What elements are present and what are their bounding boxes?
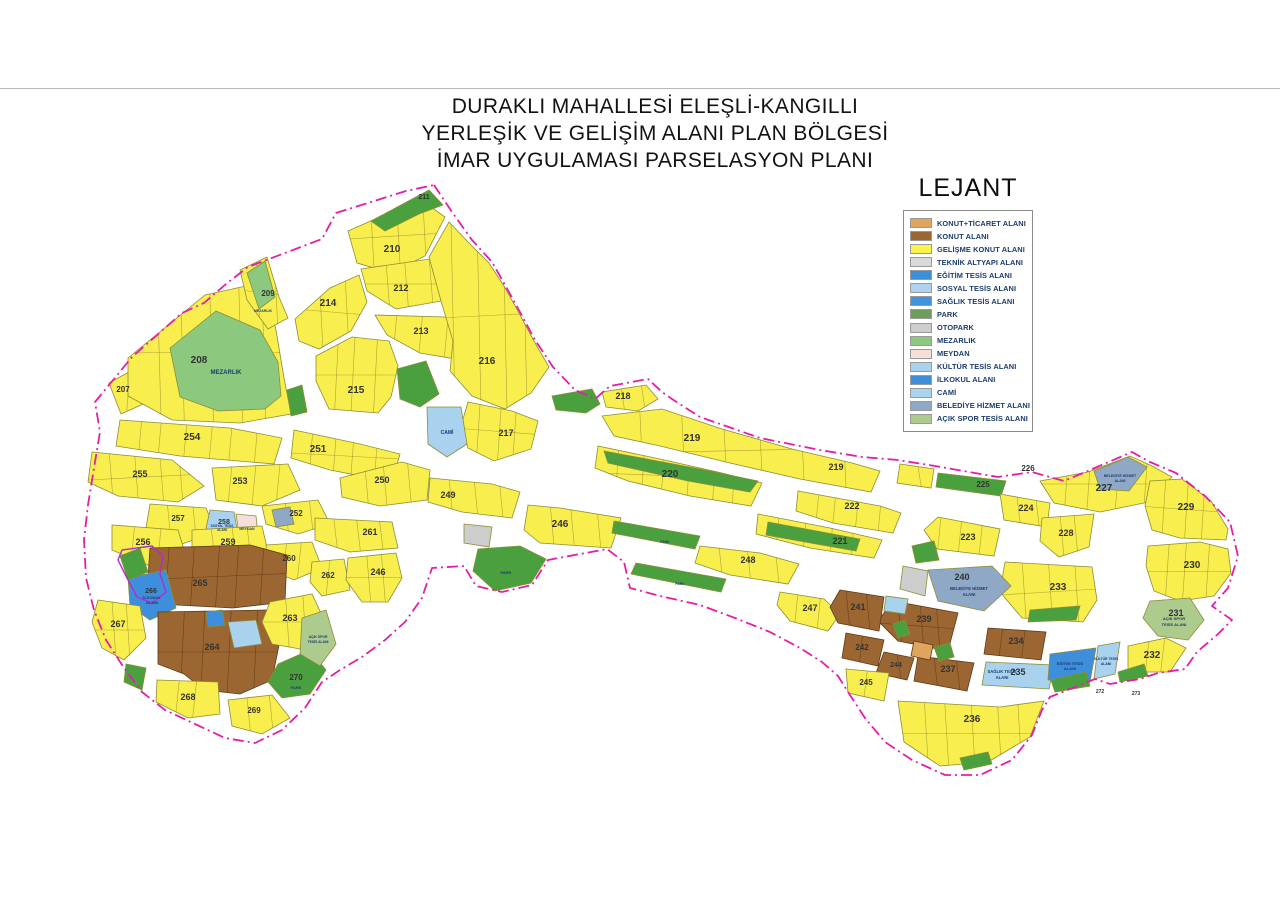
parcel-block	[900, 566, 928, 596]
legend-item: OTOPARK	[910, 323, 1026, 333]
legend-item: SOSYAL TESİS ALANI	[910, 283, 1026, 293]
legend-item: AÇIK SPOR TESİS ALANI	[910, 414, 1026, 424]
legend-swatch	[910, 231, 932, 241]
facility-label: CAMİ	[441, 429, 454, 436]
block-number-label: 211	[418, 194, 429, 201]
block-number-label: 259	[220, 537, 235, 547]
facility-label: ALANI	[996, 675, 1009, 680]
parcel-block	[897, 464, 934, 488]
legend-title: LEJANT	[903, 174, 1033, 203]
block-number-label: 264	[204, 642, 219, 652]
block-number-label: 210	[384, 244, 401, 255]
legend-swatch	[910, 388, 932, 398]
block-number-label: 253	[232, 476, 247, 486]
block-number-label: 212	[393, 283, 408, 293]
legend: LEJANT KONUT+TİCARET ALANIKONUT ALANIGEL…	[903, 174, 1033, 432]
block-number-label: 256	[135, 537, 150, 547]
facility-label: PARK	[290, 685, 301, 690]
legend-swatch	[910, 270, 932, 280]
block-number-label: 216	[479, 356, 496, 367]
legend-item-label: SAĞLIK TESİS ALANI	[937, 297, 1015, 306]
block-number-label: 217	[498, 428, 513, 438]
legend-item: CAMİ	[910, 388, 1026, 398]
legend-swatch	[910, 336, 932, 346]
block-number-label: 265	[192, 578, 207, 588]
legend-item: KONUT ALANI	[910, 231, 1026, 241]
block-number-label: 262	[321, 571, 335, 580]
legend-swatch	[910, 362, 932, 372]
legend-item-label: CAMİ	[937, 388, 956, 397]
legend-swatch	[910, 323, 932, 333]
block-number-label: 260	[282, 554, 296, 563]
block-number-label: 252	[289, 509, 303, 518]
block-number-label: 272	[1096, 689, 1105, 695]
facility-label: MEYDAN	[239, 527, 255, 531]
legend-swatch	[910, 296, 932, 306]
block-number-label: 241	[850, 602, 865, 612]
block-number-label: 269	[247, 706, 261, 715]
facility-label: ALANI	[1101, 662, 1111, 666]
block-number-label: 228	[1058, 528, 1073, 538]
block-number-label: 219	[684, 433, 701, 444]
legend-swatch	[910, 283, 932, 293]
facility-label: MEZARLIK	[211, 370, 243, 376]
block-number-label: 214	[320, 298, 337, 309]
legend-item-label: İLKOKUL ALANI	[937, 375, 995, 384]
parcel-block	[315, 518, 398, 552]
facility-label: AÇIK SPOR	[309, 635, 328, 639]
block-number-label: 226	[1021, 464, 1035, 473]
block-number-label: 248	[740, 555, 755, 565]
legend-item: GELİŞME KONUT ALANI	[910, 244, 1026, 254]
legend-item: İLKOKUL ALANI	[910, 375, 1026, 385]
block-number-label: 240	[954, 572, 969, 582]
legend-item: MEZARLIK	[910, 336, 1026, 346]
legend-item-label: SOSYAL TESİS ALANI	[937, 284, 1016, 293]
block-number-label: 208	[191, 355, 208, 366]
block-number-label: 223	[960, 532, 975, 542]
block-number-label: 209	[261, 289, 275, 298]
legend-swatch	[910, 414, 932, 424]
legend-item-label: PARK	[937, 310, 958, 319]
facility-label: BELEDİYE HİZMET	[950, 586, 988, 591]
block-number-label: 232	[1144, 650, 1161, 661]
legend-swatch	[910, 375, 932, 385]
block-number-label: 225	[976, 480, 990, 489]
block-number-label: 255	[132, 469, 147, 479]
block-number-label: 221	[832, 536, 847, 546]
block-number-label: 273	[1132, 691, 1141, 697]
parcel-block	[228, 620, 262, 648]
legend-item: KÜLTÜR TESİS ALANI	[910, 362, 1026, 372]
block-number-label: 266	[145, 588, 157, 595]
facility-label: PARK	[660, 540, 670, 544]
block-number-label: 230	[1184, 560, 1201, 571]
parcel-block	[473, 546, 546, 591]
legend-item: KONUT+TİCARET ALANI	[910, 218, 1026, 228]
legend-item-label: BELEDİYE HİZMET ALANI	[937, 401, 1030, 410]
facility-label: TESİS ALANI	[1162, 622, 1187, 627]
facility-label: KÜLTÜR TESİS	[1094, 656, 1119, 661]
legend-item: SAĞLIK TESİS ALANI	[910, 296, 1026, 306]
parcel-block	[124, 664, 146, 690]
facility-label: ALANI	[1064, 666, 1076, 671]
facility-label: SAĞLIK TESİS	[987, 669, 1016, 674]
legend-box: KONUT+TİCARET ALANIKONUT ALANIGELİŞME KO…	[903, 210, 1033, 432]
legend-item-label: AÇIK SPOR TESİS ALANI	[937, 414, 1028, 423]
block-number-label: 229	[1178, 502, 1195, 513]
facility-label: ALANI	[217, 528, 227, 532]
block-number-label: 246	[552, 519, 569, 530]
parcel-block	[287, 385, 307, 416]
block-number-label: 237	[940, 664, 955, 674]
legend-swatch	[910, 244, 932, 254]
facility-label: ALANI	[963, 592, 976, 597]
parcel-block	[397, 361, 439, 407]
block-number-label: 234	[1008, 636, 1023, 646]
block-number-label: 220	[662, 469, 679, 480]
block-number-label: 239	[916, 614, 931, 624]
block-number-label: 257	[171, 514, 185, 523]
facility-label: PARK	[500, 570, 511, 575]
legend-swatch	[910, 309, 932, 319]
plan-sheet: DURAKLI MAHALLESİ ELEŞLİ-KANGILLI YERLEŞ…	[0, 0, 1280, 905]
block-number-label: 254	[184, 432, 201, 443]
parcel-block	[884, 596, 908, 614]
legend-item: EĞİTİM TESİS ALANI	[910, 270, 1026, 280]
block-number-label: 242	[855, 643, 869, 652]
legend-item-label: EĞİTİM TESİS ALANI	[937, 271, 1012, 280]
facility-label: ALANI	[1115, 479, 1126, 483]
facility-label: TESİS ALANI	[308, 640, 329, 644]
facility-label: ALANI	[146, 600, 158, 605]
block-number-label: 218	[615, 391, 630, 401]
parcel-block	[206, 610, 225, 627]
facility-label: PARK	[675, 582, 685, 586]
legend-item-label: MEYDAN	[937, 349, 970, 358]
block-number-label: 268	[180, 692, 195, 702]
block-number-label: 222	[844, 501, 859, 511]
block-number-label: 236	[964, 714, 981, 725]
block-number-label: 251	[310, 444, 327, 455]
block-number-label: 261	[362, 527, 377, 537]
legend-item: TEKNİK ALTYAPI ALANI	[910, 257, 1026, 267]
parcel-block	[212, 464, 300, 506]
legend-item-label: KÜLTÜR TESİS ALANI	[937, 362, 1016, 371]
block-number-label: 244	[890, 662, 902, 669]
parcel-block	[464, 524, 492, 547]
facility-label: BELEDİYE HİZMET	[1104, 474, 1137, 478]
block-number-label: 247	[802, 603, 817, 613]
block-number-label: 233	[1050, 582, 1067, 593]
legend-swatch	[910, 401, 932, 411]
legend-item: BELEDİYE HİZMET ALANI	[910, 401, 1026, 411]
block-number-label: 215	[348, 385, 365, 396]
block-number-label: 224	[1018, 503, 1033, 513]
facility-label: AÇIK SPOR	[1163, 616, 1185, 621]
block-number-label: 227	[1096, 483, 1113, 494]
parcelation-map: 2072082092102112122132142152162172182192…	[0, 0, 1280, 905]
legend-swatch	[910, 349, 932, 359]
block-number-label: 263	[282, 613, 297, 623]
legend-item: PARK	[910, 309, 1026, 319]
legend-item-label: GELİŞME KONUT ALANI	[937, 245, 1025, 254]
legend-item-label: KONUT+TİCARET ALANI	[937, 219, 1026, 228]
parcel-block	[912, 541, 939, 563]
block-number-label: 270	[289, 673, 303, 682]
parcel-block	[552, 389, 600, 413]
block-number-label: 267	[110, 619, 125, 629]
legend-swatch	[910, 257, 932, 267]
block-number-label: 219	[828, 462, 843, 472]
parcel-block	[612, 521, 700, 549]
legend-swatch	[910, 218, 932, 228]
block-number-label: 213	[413, 326, 428, 336]
facility-label: MEZARLIK	[254, 309, 273, 313]
legend-item-label: MEZARLIK	[937, 336, 976, 345]
block-number-label: 207	[116, 385, 130, 394]
legend-item-label: TEKNİK ALTYAPI ALANI	[937, 258, 1023, 267]
block-number-label: 249	[440, 490, 455, 500]
block-number-label: 250	[374, 475, 389, 485]
block-number-label: 245	[859, 678, 873, 687]
block-number-label: 246	[370, 567, 385, 577]
legend-item-label: OTOPARK	[937, 323, 974, 332]
legend-item-label: KONUT ALANI	[937, 232, 989, 241]
legend-item: MEYDAN	[910, 349, 1026, 359]
